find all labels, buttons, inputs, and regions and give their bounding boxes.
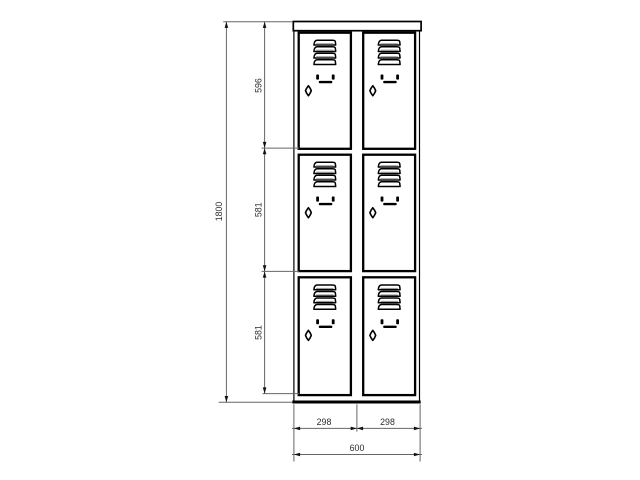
svg-text:1800: 1800 <box>214 202 224 222</box>
svg-text:298: 298 <box>380 417 395 427</box>
svg-text:581: 581 <box>253 325 263 340</box>
svg-text:298: 298 <box>317 417 332 427</box>
svg-text:581: 581 <box>253 202 263 217</box>
svg-text:596: 596 <box>253 78 263 93</box>
svg-text:600: 600 <box>350 443 365 453</box>
